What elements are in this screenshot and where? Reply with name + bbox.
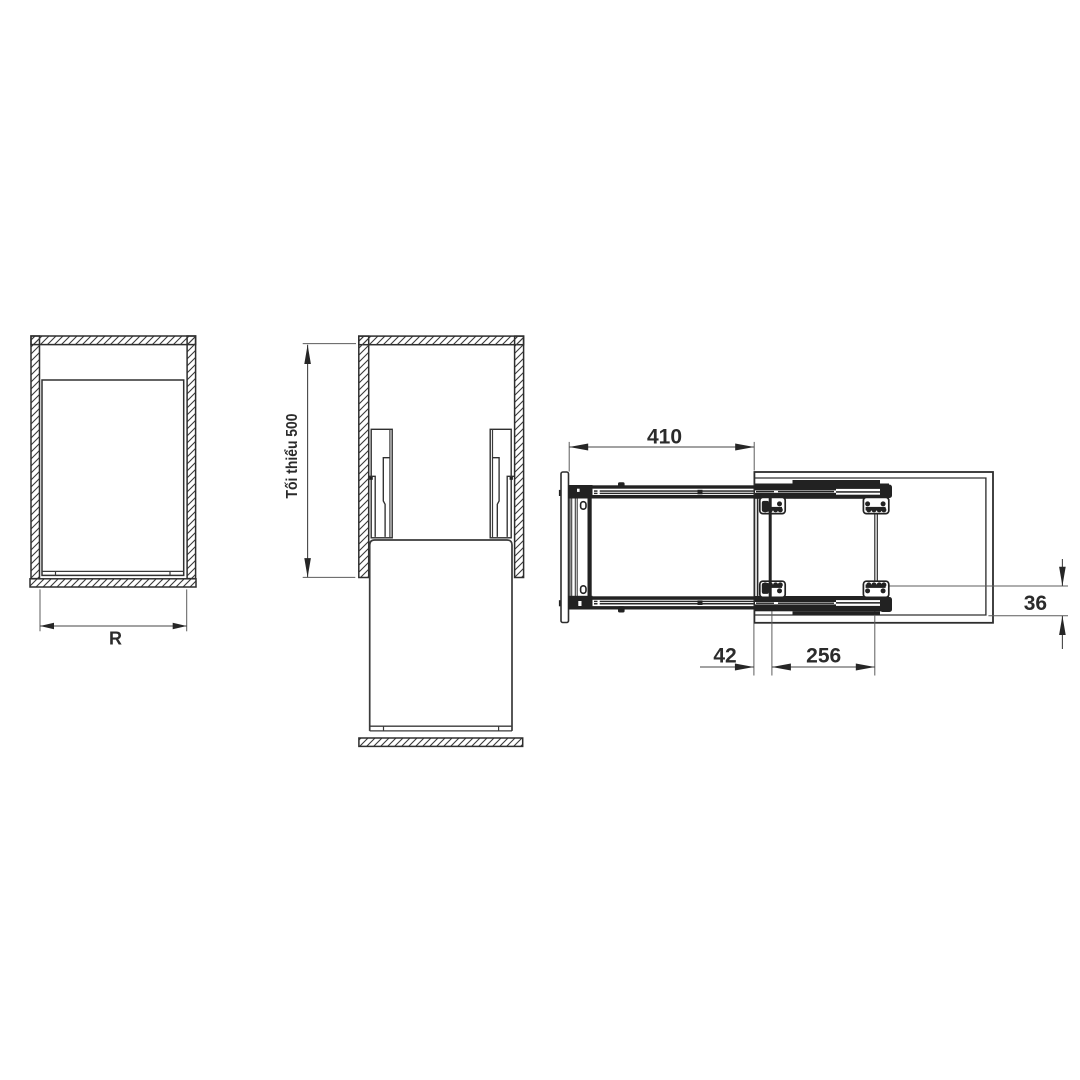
svg-text:42: 42: [713, 645, 736, 668]
svg-text:R: R: [109, 629, 122, 649]
svg-text:Tối thiểu 500: Tối thiểu 500: [283, 413, 301, 498]
svg-text:36: 36: [1024, 592, 1047, 615]
svg-text:256: 256: [806, 645, 841, 668]
svg-text:410: 410: [647, 425, 682, 448]
